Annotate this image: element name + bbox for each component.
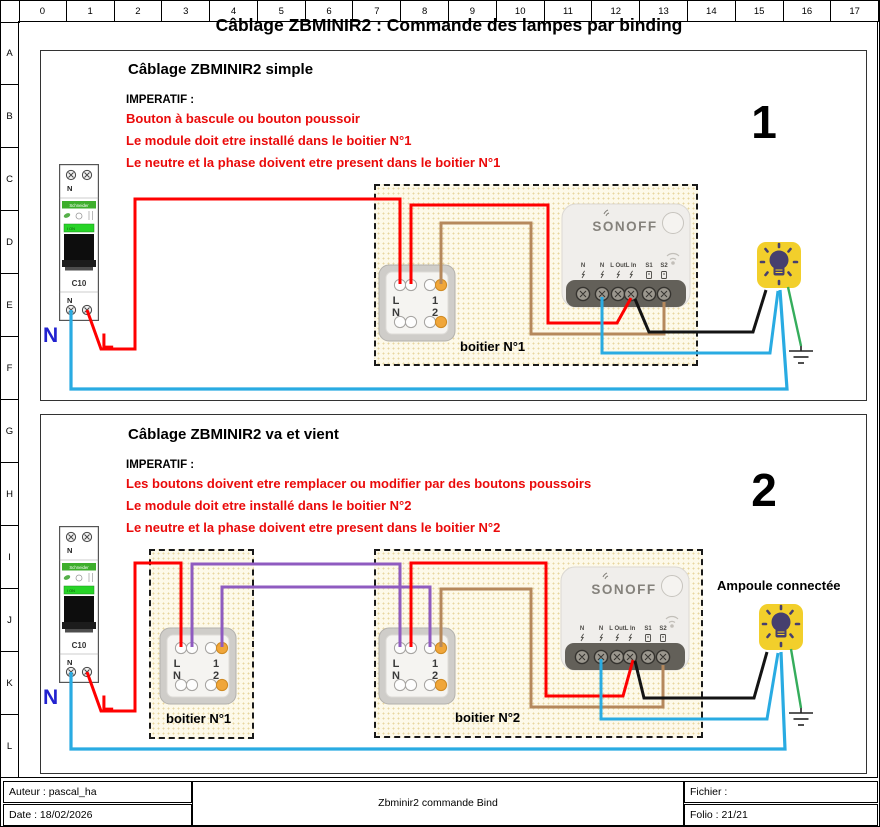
panel1-boitier-1-label: boitier N°1	[460, 339, 525, 354]
warning-line: Le neutre et la phase doivent etre prese…	[126, 152, 500, 174]
pairing-button[interactable]	[662, 576, 683, 597]
panel2-boitier-1-label: boitier N°1	[166, 711, 231, 726]
ruler-row-cell: D	[1, 211, 19, 274]
panel-1-warnings: Bouton à bascule ou bouton poussoirLe mo…	[126, 108, 500, 174]
svg-text:N: N	[67, 546, 72, 555]
svg-text:N: N	[392, 307, 400, 319]
warning-line: Les boutons doivent etre remplacer ou mo…	[126, 473, 591, 495]
svg-text:Schneider: Schneider	[69, 565, 89, 570]
titleblock-author: Auteur : pascal_ha	[3, 781, 192, 803]
titleblock-title: Zbminir2 commande Bind	[192, 781, 684, 826]
panel1-line-label: L	[101, 331, 114, 352]
ruler-row-cell: J	[1, 589, 19, 652]
svg-text:L: L	[174, 658, 181, 670]
svg-text:1: 1	[213, 658, 219, 670]
ruler-row-cell: E	[1, 274, 19, 337]
page-title: Câblage ZBMINIR2 : Commande des lampes p…	[19, 15, 879, 36]
svg-text:N: N	[600, 263, 604, 269]
panel1-neutral-label: N	[43, 325, 58, 346]
warning-line: Le neutre et la phase doivent etre prese…	[126, 517, 591, 539]
panel-1-title: Câblage ZBMINIR2 simple	[128, 61, 313, 78]
pairing-button[interactable]	[663, 213, 684, 234]
sonoff-module-p2: SONOFF N N L Out L In S1 S2	[560, 566, 690, 671]
svg-text:L In: L In	[626, 263, 637, 269]
svg-text:N: N	[392, 670, 400, 682]
ruler-row-cell: B	[1, 85, 19, 148]
svg-text:1: 1	[432, 295, 438, 307]
svg-text:L: L	[393, 658, 400, 670]
svg-text:N: N	[581, 263, 585, 269]
svg-text:S2: S2	[660, 263, 668, 269]
earth-ground-symbol-p1	[788, 345, 814, 369]
panel-2-number: 2	[741, 467, 787, 513]
panel-1-imperatif: IMPERATIF :	[126, 94, 194, 106]
warning-line: Bouton à bascule ou bouton poussoir	[126, 108, 500, 130]
connected-lamp-label: Ampoule connectée	[717, 578, 841, 593]
ruler-row-cell: C	[1, 148, 19, 211]
ruler-corner	[1, 1, 20, 23]
wall-switch-p1[interactable]: L 1 N 2	[378, 264, 456, 342]
ruler-left: ABCDEFGHIJKL	[1, 22, 19, 778]
panel2-line-label: L	[101, 693, 114, 714]
sonoff-logo: SONOFF	[591, 582, 656, 597]
svg-text:L: L	[393, 295, 400, 307]
titleblock-file: Fichier :	[684, 781, 878, 803]
brand-label: Schneider	[69, 203, 89, 208]
sonoff-module-p1: SONOFF N N L Out L In S1 S2	[561, 203, 691, 308]
ruler-row-cell: A	[1, 22, 19, 85]
svg-text:1: 1	[432, 658, 438, 670]
wall-switch-p2-box2[interactable]: L 1 N 2	[378, 627, 456, 705]
circuit-breaker-1: N Schneider I ON C10 N	[59, 164, 99, 321]
panel2-boitier-2-label: boitier N°2	[455, 710, 520, 725]
ruler-row-cell: H	[1, 463, 19, 526]
warning-line: Le module doit etre installé dans le boi…	[126, 495, 591, 517]
earth-ground-symbol-p2	[788, 707, 814, 731]
ruler-row-cell: F	[1, 337, 19, 400]
svg-text:L Out: L Out	[609, 626, 625, 632]
svg-text:N: N	[599, 626, 603, 632]
ruler-row-cell: G	[1, 400, 19, 463]
svg-text:N: N	[580, 626, 584, 632]
panel2-neutral-label: N	[43, 687, 58, 708]
breaker-toggle[interactable]	[64, 596, 94, 622]
panel-2-title: Câblage ZBMINIR2 va et vient	[128, 426, 339, 443]
svg-text:N: N	[173, 670, 181, 682]
panel-2-imperatif: IMPERATIF :	[126, 459, 194, 471]
schematic-sheet: 01234567891011121314151617 ABCDEFGHIJKL …	[0, 0, 880, 827]
sonoff-logo: SONOFF	[592, 219, 657, 234]
panel-2-warnings: Les boutons doivent etre remplacer ou mo…	[126, 473, 591, 539]
svg-text:N: N	[67, 658, 72, 667]
circuit-breaker-2: N Schneider I ON C10 N	[59, 526, 99, 683]
ruler-row-cell: I	[1, 526, 19, 589]
svg-text:L Out: L Out	[610, 263, 626, 269]
ruler-row-cell: K	[1, 652, 19, 715]
svg-text:2: 2	[432, 670, 438, 682]
warning-line: Le module doit etre installé dans le boi…	[126, 130, 500, 152]
breaker-top-n: N	[67, 184, 72, 193]
bulb-glyph	[770, 251, 789, 270]
svg-text:2: 2	[432, 307, 438, 319]
breaker-model: C10	[72, 279, 87, 288]
panel-1-number: 1	[741, 99, 787, 145]
lamp-icon-p1	[756, 241, 802, 289]
svg-text:S2: S2	[659, 626, 667, 632]
bulb-glyph	[772, 613, 791, 632]
ruler-row-cell: L	[1, 715, 19, 778]
breaker-bottom-n: N	[67, 296, 72, 305]
on-indicator-label: I ON	[67, 227, 75, 231]
svg-text:I ON: I ON	[67, 589, 75, 593]
svg-text:L In: L In	[625, 626, 636, 632]
breaker-toggle[interactable]	[64, 234, 94, 260]
svg-text:S1: S1	[645, 263, 653, 269]
svg-text:C10: C10	[72, 641, 87, 650]
wall-switch-p2-box1[interactable]: L 1 N 2	[159, 627, 237, 705]
svg-text:2: 2	[213, 670, 219, 682]
titleblock-date: Date : 18/02/2026	[3, 804, 192, 826]
svg-text:S1: S1	[644, 626, 652, 632]
titleblock-folio: Folio : 21/21	[684, 804, 878, 826]
lamp-icon-p2	[758, 603, 804, 651]
